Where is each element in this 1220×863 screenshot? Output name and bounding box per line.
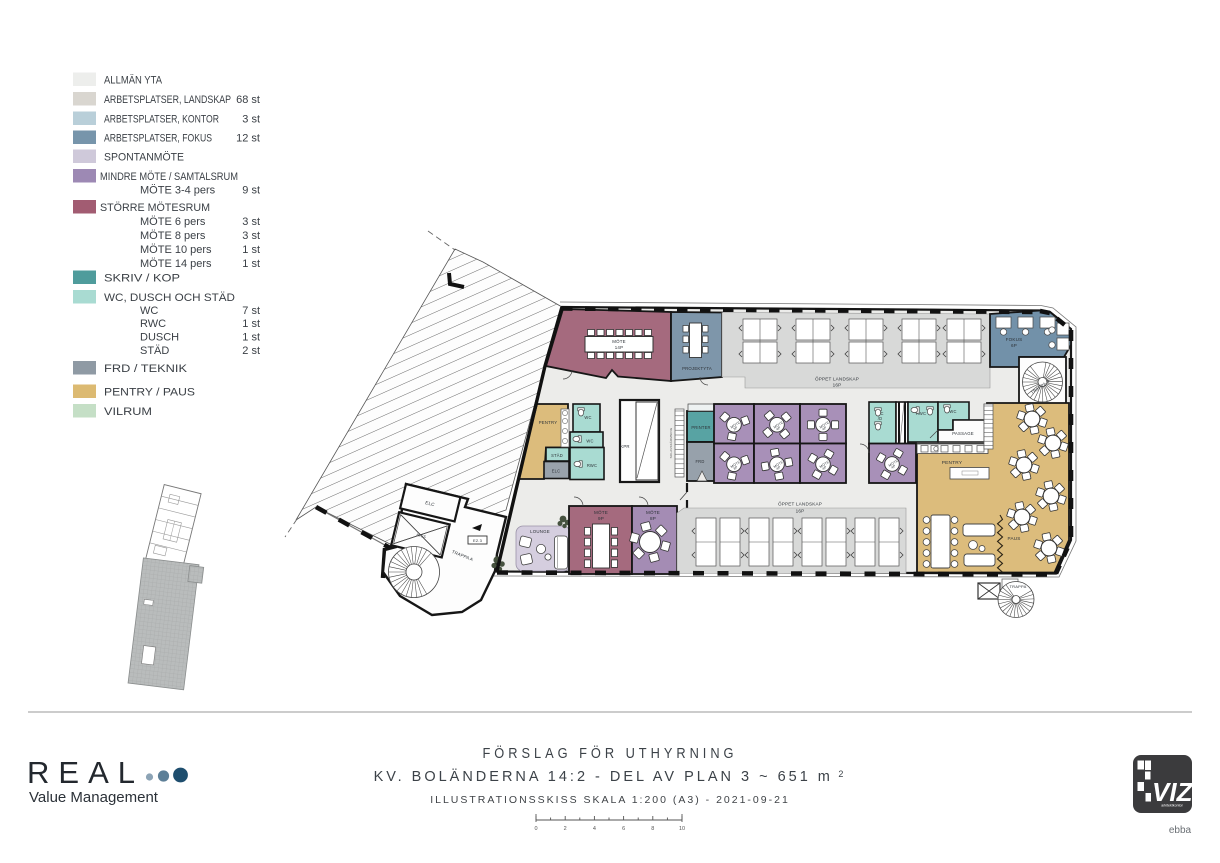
svg-text:ARBETSPLATSER, KONTOR: ARBETSPLATSER, KONTOR (104, 114, 219, 126)
svg-text:PENTRY: PENTRY (539, 420, 558, 425)
svg-text:WC: WC (949, 409, 956, 414)
svg-text:REAL: REAL (27, 755, 144, 790)
svg-text:WC: WC (586, 439, 593, 444)
svg-text:SOLAVSKÄRMNING: SOLAVSKÄRMNING (669, 427, 673, 458)
svg-text:SKRIV / KOP: SKRIV / KOP (104, 273, 180, 285)
svg-text:6P: 6P (1011, 343, 1017, 348)
svg-text:ÖPPET LANDSKAP: ÖPPET LANDSKAP (815, 376, 859, 382)
svg-text:1 st: 1 st (242, 244, 260, 256)
svg-text:FOKUS: FOKUS (1006, 337, 1023, 342)
svg-text:VIZ: VIZ (1152, 777, 1194, 807)
svg-text:VILRUM: VILRUM (104, 406, 152, 418)
svg-text:ILLUSTRATIONSSKISS SKALA 1:200: ILLUSTRATIONSSKISS SKALA 1:200 (A3) - 20… (430, 794, 790, 806)
svg-text:RWC: RWC (587, 463, 597, 468)
svg-text:ELC: ELC (552, 469, 561, 474)
svg-text:STÖRRE MÖTESRUM: STÖRRE MÖTESRUM (100, 202, 210, 214)
svg-text:9P: 9P (598, 516, 604, 521)
svg-text:1 st: 1 st (242, 318, 260, 330)
svg-text:PROJEKTYTA: PROJEKTYTA (682, 366, 712, 371)
svg-text:TRAPPA: TRAPPA (1010, 584, 1027, 589)
svg-text:STÄD: STÄD (140, 345, 169, 357)
svg-text:4: 4 (593, 826, 596, 832)
svg-text:2: 2 (564, 826, 567, 832)
svg-text:PAUS: PAUS (1008, 536, 1021, 541)
svg-text:16P: 16P (833, 383, 842, 388)
svg-text:MÖTE 8 pers: MÖTE 8 pers (140, 230, 206, 242)
svg-text:KPR: KPR (620, 444, 629, 449)
svg-text:3 st: 3 st (242, 114, 260, 126)
svg-text:MÖTE 3-4 pers: MÖTE 3-4 pers (140, 185, 216, 197)
svg-text:PENTRY / PAUS: PENTRY / PAUS (104, 387, 195, 399)
svg-text:FÖRSLAG FÖR UTHYRNING: FÖRSLAG FÖR UTHYRNING (483, 744, 738, 762)
svg-text:WC: WC (140, 305, 158, 317)
svg-text:Value Management: Value Management (29, 789, 159, 806)
svg-text:FRD: FRD (695, 459, 704, 464)
svg-text:ARBETSPLATSER, FOKUS: ARBETSPLATSER, FOKUS (104, 133, 212, 145)
svg-text:FRD / TEKNIK: FRD / TEKNIK (104, 363, 188, 375)
svg-text:7 st: 7 st (242, 305, 260, 317)
svg-text:ALLMÄN YTA: ALLMÄN YTA (104, 75, 163, 87)
svg-text:E2.3: E2.3 (473, 538, 483, 543)
svg-text:0: 0 (534, 826, 537, 832)
svg-text:16P: 16P (796, 509, 805, 514)
svg-text:3 st: 3 st (242, 230, 260, 242)
svg-text:12 st: 12 st (236, 133, 260, 145)
svg-text:PRINTER: PRINTER (691, 425, 710, 430)
svg-text:DUSCH: DUSCH (140, 332, 179, 344)
svg-text:MÖTE: MÖTE (646, 509, 660, 515)
svg-text:ÖPPET LANDSKAP: ÖPPET LANDSKAP (778, 501, 822, 507)
svg-text:1 st: 1 st (242, 332, 260, 344)
svg-text:68 st: 68 st (236, 94, 260, 106)
svg-text:MÖTE: MÖTE (612, 339, 625, 344)
svg-text:ebba: ebba (1169, 825, 1192, 836)
svg-text:MÖTE 14 pers: MÖTE 14 pers (140, 258, 212, 270)
svg-text:9 st: 9 st (242, 185, 260, 197)
svg-text:RWC: RWC (140, 318, 166, 330)
svg-text:8P: 8P (650, 516, 656, 521)
svg-text:LOUNGE: LOUNGE (530, 529, 550, 534)
svg-text:1 st: 1 st (242, 258, 260, 270)
svg-text:STÄD: STÄD (551, 453, 563, 458)
svg-text:WC, DUSCH OCH STÄD: WC, DUSCH OCH STÄD (104, 292, 235, 304)
svg-text:10: 10 (679, 826, 685, 832)
svg-text:arkitektkontor: arkitektkontor (1161, 804, 1183, 808)
svg-text:PENTRY: PENTRY (942, 460, 963, 466)
svg-text:MÖTE 10 pers: MÖTE 10 pers (140, 244, 212, 256)
svg-text:3 st: 3 st (242, 216, 260, 228)
svg-text:MÖTE 6 pers: MÖTE 6 pers (140, 216, 206, 228)
svg-text:MÖTE: MÖTE (594, 509, 608, 515)
svg-text:KV. BOLÄNDERNA 14:2 - DEL AV P: KV. BOLÄNDERNA 14:2 - DEL AV PLAN 3 ~ 65… (374, 768, 847, 785)
svg-text:2 st: 2 st (242, 345, 260, 357)
svg-text:ARBETSPLATSER, LANDSKAP: ARBETSPLATSER, LANDSKAP (104, 94, 231, 106)
svg-text:8: 8 (651, 826, 654, 832)
svg-text:14P: 14P (615, 345, 623, 350)
svg-text:/D: /D (878, 416, 883, 421)
svg-text:SPONTANMÖTE: SPONTANMÖTE (104, 152, 184, 164)
svg-text:6: 6 (622, 826, 625, 832)
svg-text:WC: WC (584, 415, 591, 420)
svg-text:PASSAGE: PASSAGE (952, 431, 974, 436)
svg-text:MINDRE MÖTE / SAMTALSRUM: MINDRE MÖTE / SAMTALSRUM (100, 171, 238, 183)
